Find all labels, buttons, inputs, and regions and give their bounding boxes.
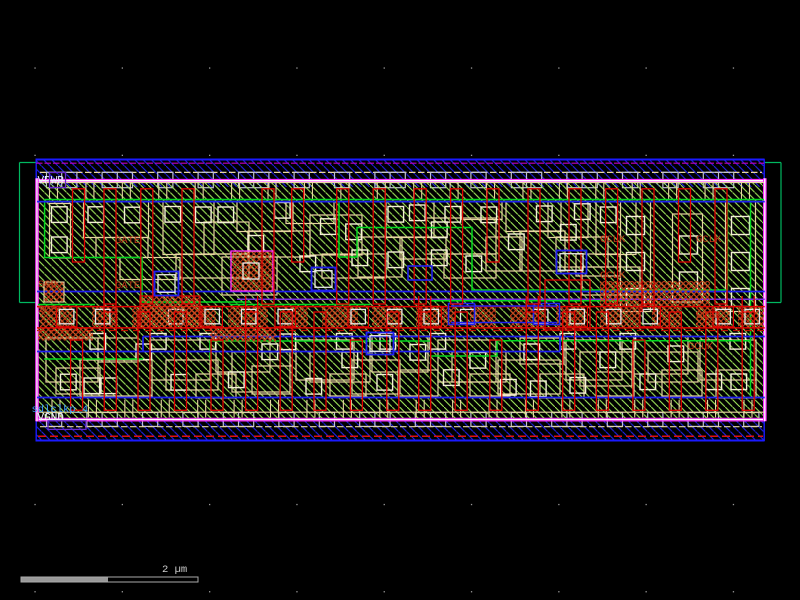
svg-text:GCLK: GCLK xyxy=(600,270,626,282)
svg-text:GCLK: GCLK xyxy=(688,341,714,353)
svg-text:sdlclkp_4: sdlclkp_4 xyxy=(32,404,89,416)
svg-text:GCLK: GCLK xyxy=(696,234,722,246)
svg-text:VPWR: VPWR xyxy=(38,176,65,188)
svg-text:GCLK: GCLK xyxy=(696,310,722,322)
svg-text:SGB: SGB xyxy=(38,279,57,291)
svg-text:GCLK: GCLK xyxy=(600,234,626,246)
svg-text:SCE: SCE xyxy=(38,304,57,316)
svg-text:GATE: GATE xyxy=(115,235,140,247)
svg-text:GATE: GATE xyxy=(115,280,140,292)
svg-text:2 µm: 2 µm xyxy=(162,564,187,576)
